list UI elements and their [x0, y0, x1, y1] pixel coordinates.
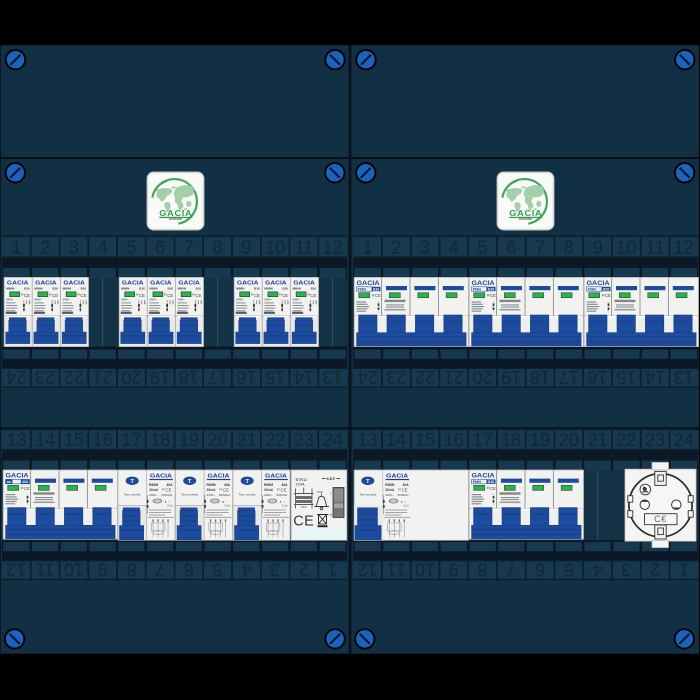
svg-text:19: 19 [501, 367, 521, 387]
svg-text:3: 3 [420, 237, 430, 257]
svg-text:23: 23 [35, 367, 55, 387]
svg-text:17: 17 [472, 430, 492, 450]
svg-text:17: 17 [559, 367, 579, 387]
svg-text:4: 4 [98, 237, 108, 257]
svg-text:17: 17 [207, 367, 227, 387]
svg-text:14: 14 [35, 430, 55, 450]
svg-text:9: 9 [98, 559, 108, 579]
svg-text:6: 6 [184, 559, 194, 579]
svg-text:9: 9 [449, 559, 459, 579]
svg-text:5: 5 [213, 559, 223, 579]
svg-text:11: 11 [646, 237, 665, 257]
svg-text:18: 18 [150, 430, 170, 450]
svg-text:4: 4 [593, 559, 603, 579]
svg-text:2: 2 [391, 237, 401, 257]
svg-text:24: 24 [674, 430, 694, 450]
svg-text:8: 8 [126, 559, 136, 579]
svg-text:2: 2 [650, 559, 660, 579]
svg-text:12: 12 [6, 559, 26, 579]
svg-text:18: 18 [501, 430, 521, 450]
svg-text:1: 1 [363, 237, 373, 257]
svg-text:7: 7 [535, 237, 545, 257]
svg-text:22: 22 [64, 367, 84, 387]
svg-text:7: 7 [155, 559, 165, 579]
svg-text:14: 14 [294, 367, 314, 387]
svg-text:15: 15 [616, 367, 636, 387]
svg-text:13: 13 [322, 367, 342, 387]
svg-text:12: 12 [674, 237, 694, 257]
svg-text:13: 13 [357, 430, 377, 450]
svg-text:18: 18 [530, 367, 550, 387]
svg-text:3: 3 [270, 559, 280, 579]
svg-text:10: 10 [616, 237, 636, 257]
svg-text:20: 20 [559, 430, 579, 450]
svg-text:21: 21 [587, 430, 607, 450]
svg-text:10: 10 [415, 559, 435, 579]
svg-text:3: 3 [621, 559, 631, 579]
svg-text:7: 7 [506, 559, 516, 579]
svg-text:5: 5 [478, 237, 488, 257]
svg-text:24: 24 [6, 367, 26, 387]
svg-text:19: 19 [530, 430, 550, 450]
svg-text:6: 6 [535, 559, 545, 579]
svg-text:3: 3 [69, 237, 79, 257]
svg-text:11: 11 [294, 237, 313, 257]
svg-text:6: 6 [506, 237, 516, 257]
svg-text:20: 20 [121, 367, 141, 387]
svg-text:24: 24 [322, 430, 342, 450]
svg-text:2: 2 [40, 237, 50, 257]
svg-text:18: 18 [179, 367, 199, 387]
svg-text:1: 1 [328, 559, 338, 579]
svg-text:22: 22 [616, 430, 636, 450]
svg-text:11: 11 [387, 559, 406, 579]
svg-text:13: 13 [6, 430, 26, 450]
svg-text:16: 16 [92, 430, 112, 450]
svg-text:14: 14 [386, 430, 406, 450]
svg-text:23: 23 [645, 430, 665, 450]
svg-text:2: 2 [299, 559, 309, 579]
svg-text:4: 4 [241, 559, 251, 579]
svg-text:5: 5 [126, 237, 136, 257]
svg-text:8: 8 [564, 237, 574, 257]
svg-text:16: 16 [444, 430, 464, 450]
svg-text:14: 14 [645, 367, 665, 387]
svg-text:12: 12 [322, 237, 342, 257]
svg-text:16: 16 [236, 367, 256, 387]
svg-text:21: 21 [444, 367, 464, 387]
svg-text:22: 22 [265, 430, 285, 450]
svg-text:7: 7 [184, 237, 194, 257]
svg-text:23: 23 [294, 430, 314, 450]
svg-text:21: 21 [236, 430, 256, 450]
svg-text:9: 9 [241, 237, 251, 257]
svg-text:8: 8 [478, 559, 488, 579]
svg-text:1: 1 [679, 559, 689, 579]
svg-text:4: 4 [449, 237, 459, 257]
svg-text:10: 10 [64, 559, 84, 579]
svg-text:24: 24 [357, 367, 377, 387]
svg-text:21: 21 [92, 367, 112, 387]
svg-text:17: 17 [121, 430, 141, 450]
svg-text:1: 1 [11, 237, 21, 257]
svg-text:19: 19 [150, 367, 170, 387]
svg-text:20: 20 [472, 367, 492, 387]
svg-text:16: 16 [587, 367, 607, 387]
svg-text:5: 5 [564, 559, 574, 579]
svg-text:10: 10 [265, 237, 285, 257]
svg-text:15: 15 [415, 430, 435, 450]
svg-text:23: 23 [386, 367, 406, 387]
svg-text:9: 9 [593, 237, 603, 257]
svg-text:12: 12 [357, 559, 377, 579]
svg-text:15: 15 [64, 430, 84, 450]
svg-text:13: 13 [674, 367, 694, 387]
svg-text:20: 20 [207, 430, 227, 450]
svg-text:6: 6 [155, 237, 165, 257]
svg-text:22: 22 [415, 367, 435, 387]
svg-text:15: 15 [265, 367, 285, 387]
svg-text:19: 19 [179, 430, 199, 450]
svg-text:11: 11 [36, 559, 55, 579]
svg-text:8: 8 [213, 237, 223, 257]
